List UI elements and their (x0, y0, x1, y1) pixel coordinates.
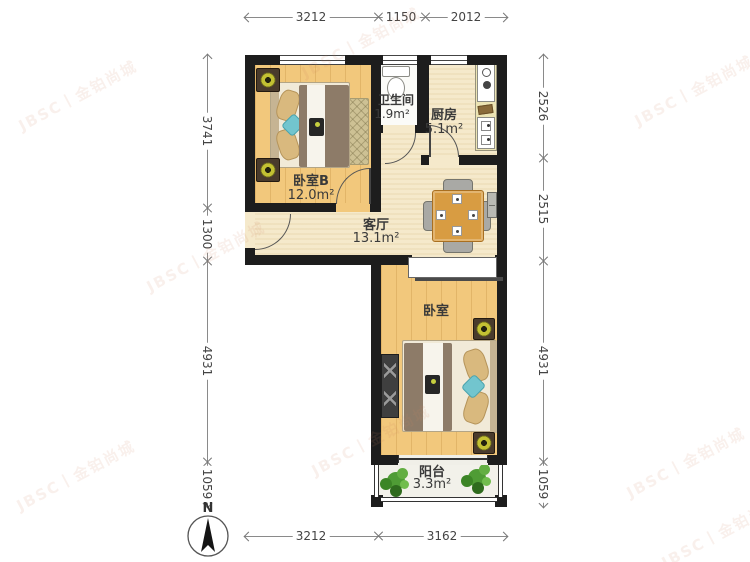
watermark: JBSC丨金铂尚城 (623, 422, 749, 502)
area-label-bathroom: 1.9m² (374, 107, 410, 121)
dimension-value: 3212 (293, 10, 330, 24)
bed-bedroom (402, 340, 497, 432)
arrow-icon (499, 13, 509, 23)
bedroom-b-door-opening (336, 203, 370, 212)
window-bedroom-b (280, 55, 345, 65)
room-label-bathroom: 卫生间 (378, 91, 414, 108)
sliding-door-panel (408, 257, 497, 278)
dimension-value: 3741 (200, 113, 214, 150)
nightstand-icon (473, 318, 495, 340)
balcony-window (498, 465, 503, 497)
watermark: JBSC丨金铂尚城 (631, 50, 750, 130)
balcony-window (381, 497, 497, 502)
sink-icon (477, 64, 495, 102)
dimension-value: 3212 (293, 529, 330, 543)
arrow-icon (539, 54, 549, 64)
dimension-tick-icon (538, 256, 548, 266)
arrow-icon (244, 532, 254, 542)
balcony-window (374, 465, 379, 497)
nightstand-icon (256, 158, 280, 182)
north-compass: N (184, 496, 232, 562)
room-label-bedroom: 卧室 (423, 300, 449, 319)
area-label-kitchen: 5.1m² (425, 122, 464, 137)
balcony-slider-track (398, 458, 488, 460)
room-label-kitchen: 厨房 (431, 104, 457, 123)
dimension-value: 4931 (536, 343, 550, 380)
watermark: JBSC丨金铂尚城 (658, 492, 750, 562)
plate-icon (452, 194, 462, 204)
arrow-icon (499, 532, 509, 542)
dimension-tick-icon (420, 12, 430, 22)
dimension-value: 1059 (536, 466, 550, 503)
north-label: N (203, 501, 214, 516)
dimension-value: 1150 (383, 10, 420, 24)
stove-icon (477, 117, 495, 149)
dimension-tick-icon (202, 256, 212, 266)
nightstand-icon (256, 68, 280, 92)
plate-icon (468, 210, 478, 220)
arrow-icon (203, 54, 213, 64)
dimension-value: 2012 (448, 10, 485, 24)
arrow-icon (244, 13, 254, 23)
watermark: JBSC丨金铂尚城 (15, 55, 141, 135)
floor-plan-canvas: 卧室B 12.0m² 卫生间 1.9m² 厨房 5.1m² 客厅 13.1m² … (0, 0, 750, 562)
wall (488, 455, 507, 465)
wall (245, 255, 412, 265)
wall (371, 261, 381, 465)
dimension-tick-icon (373, 12, 383, 22)
room-label-bedroom-b: 卧室B (293, 170, 329, 189)
nightstand-icon (473, 432, 495, 454)
wall (371, 455, 398, 465)
wall (371, 55, 381, 212)
radiator-icon (487, 192, 497, 218)
dimension-tick-icon (373, 531, 383, 541)
plate-icon (452, 226, 462, 236)
dimension-value: 4931 (200, 343, 214, 380)
plate-icon (436, 210, 446, 220)
bed-bedroom-b (270, 82, 350, 168)
window-kitchen (431, 55, 467, 65)
area-label-bedroom-b: 12.0m² (288, 188, 335, 203)
watermark: JBSC丨金铂尚城 (13, 435, 139, 515)
dimension-value: 1300 (200, 216, 214, 253)
dimension-tick-icon (202, 203, 212, 213)
dimension-tick-icon (538, 153, 548, 163)
dimension-value: 2515 (536, 191, 550, 228)
wall (497, 55, 507, 465)
plant-icon (460, 462, 494, 494)
wall (245, 55, 255, 212)
door-leaf (369, 168, 371, 204)
plant-icon (380, 466, 412, 498)
entry-door-opening (245, 212, 255, 248)
dimension-value: 2526 (536, 88, 550, 125)
dimension-value: 3162 (424, 529, 461, 543)
bathroom-door-opening (383, 125, 415, 133)
area-label-living: 13.1m² (353, 231, 400, 246)
north-arrow-icon (201, 518, 215, 552)
toilet-icon (382, 66, 410, 77)
area-label-balcony: 3.3m² (413, 477, 452, 492)
window-bathroom (383, 55, 417, 65)
wardrobe-icon (381, 354, 399, 418)
